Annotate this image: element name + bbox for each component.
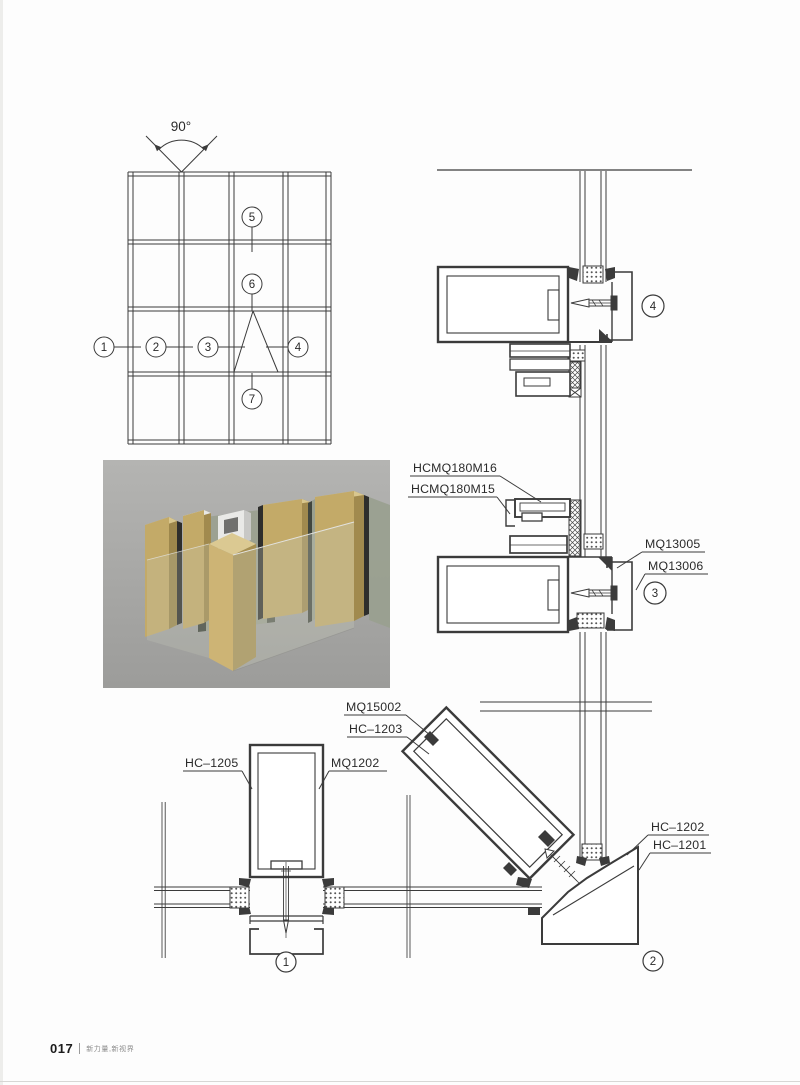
svg-text:4: 4 (295, 342, 302, 354)
corner-cover-piece (542, 847, 638, 944)
detail-2-section: MQ15002 HC–1203 HC–1202 HC–1201 2 (344, 700, 711, 971)
detail-3-callout: 3 (644, 582, 666, 604)
page-scan-edge-bottom (0, 1081, 800, 1082)
fastener-screw (571, 296, 617, 310)
detail-2-callout: 2 (643, 951, 663, 971)
diagonal-fastener (545, 849, 580, 884)
detail-1-callout: 1 (276, 952, 296, 972)
detail-4-section: 4 (438, 267, 664, 396)
elevation-diagram: 90° 1 2 3 4 5 6 7 (94, 119, 331, 444)
glass-spacer-blocks (230, 887, 344, 908)
label-mq1202: MQ1202 (331, 756, 379, 770)
label-hcmq180m16: HCMQ180M16 (413, 461, 497, 475)
svg-text:6: 6 (249, 279, 255, 291)
elevation-callouts: 1 2 3 4 5 6 7 (94, 207, 308, 409)
catalog-drawing-canvas: 90° 1 2 3 4 5 6 7 (0, 0, 800, 1085)
callout-4: 4 (288, 337, 308, 357)
callout-6: 6 (242, 274, 262, 294)
svg-text:3: 3 (652, 588, 658, 600)
svg-text:4: 4 (650, 301, 657, 313)
svg-text:3: 3 (205, 342, 211, 354)
page-number: 017 (50, 1041, 73, 1056)
fastener-screw (571, 586, 617, 600)
label-mq13006: MQ13006 (648, 559, 703, 573)
svg-text:2: 2 (650, 956, 656, 968)
detail-4-callout: 4 (642, 295, 664, 317)
svg-text:7: 7 (249, 394, 255, 406)
detail-3-section: 3 HCMQ180M16 HCMQ180M15 MQ13005 MQ13006 (408, 461, 708, 632)
label-hcmq180m15: HCMQ180M15 (411, 482, 495, 496)
elevation-grid-lines (128, 172, 331, 444)
vent-frame-profiles (506, 499, 570, 553)
label-mq15002: MQ15002 (346, 700, 401, 714)
page-footer: 017 新力量,新视界 (50, 1041, 134, 1056)
label-hc1203: HC–1203 (349, 722, 402, 736)
angle-annotation: 90° (146, 119, 217, 172)
vent-triangle (234, 311, 278, 372)
label-hc1202: HC–1202 (651, 820, 704, 834)
footer-divider (79, 1043, 80, 1054)
footer-tagline: 新力量,新视界 (86, 1044, 134, 1054)
label-mq13005: MQ13005 (645, 537, 700, 551)
render-3d-image (103, 460, 390, 688)
back-pan-profiles (510, 344, 570, 396)
label-hc1205: HC–1205 (185, 756, 238, 770)
horizontal-glass-lines (154, 887, 542, 908)
svg-text:2: 2 (153, 342, 159, 354)
svg-text:1: 1 (283, 957, 289, 969)
callout-1: 1 (94, 337, 114, 357)
callout-2: 2 (146, 337, 166, 357)
angle-label: 90° (171, 119, 191, 134)
callout-7: 7 (242, 389, 262, 409)
svg-text:5: 5 (249, 212, 255, 224)
glazing-clamps (239, 878, 334, 915)
callout-5: 5 (242, 207, 262, 227)
glass-spacer-blocks (568, 266, 604, 860)
callout-3: 3 (198, 337, 218, 357)
label-hc1201: HC–1201 (653, 838, 706, 852)
svg-text:1: 1 (101, 342, 107, 354)
